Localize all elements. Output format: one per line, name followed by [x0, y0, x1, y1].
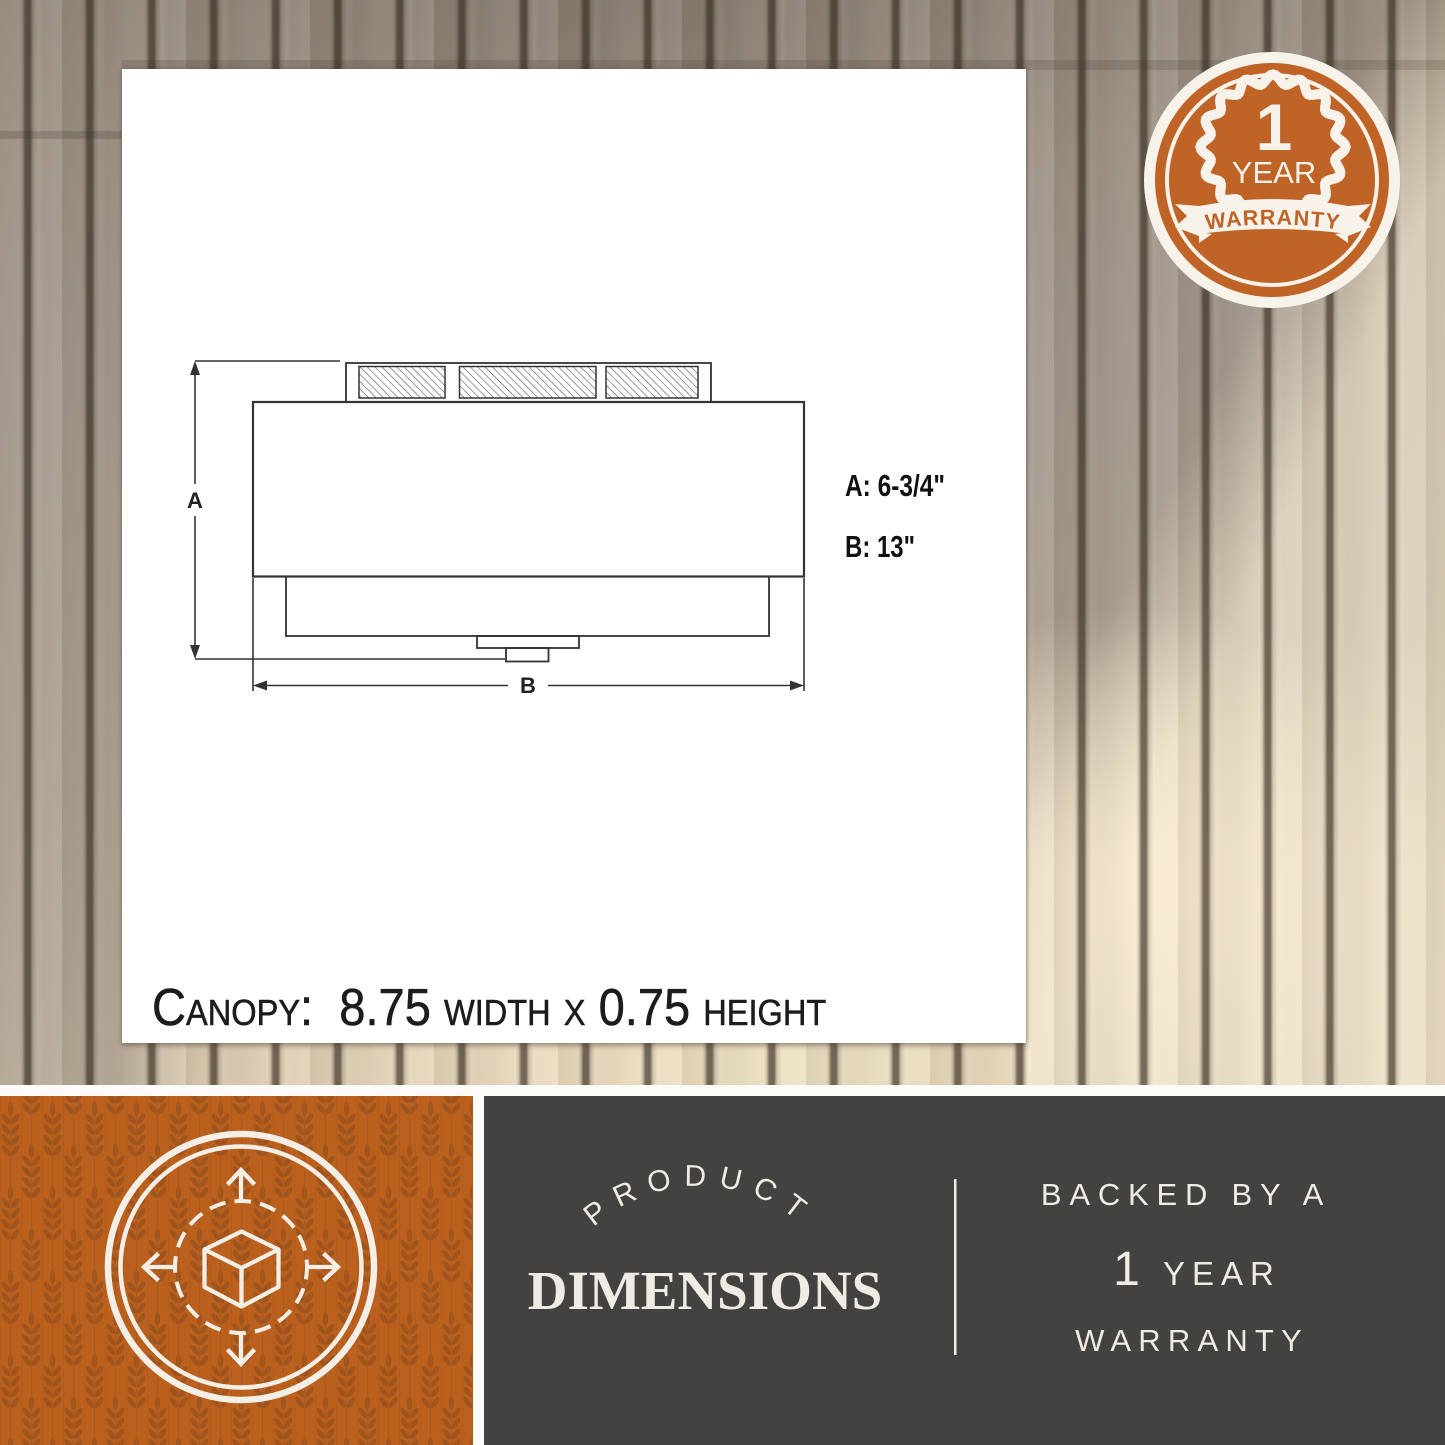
svg-text:B: B	[520, 673, 536, 698]
svg-text:PRODUCT: PRODUCT	[578, 1160, 822, 1233]
svg-text:1 YEAR: 1 YEAR	[1113, 1243, 1281, 1296]
svg-text:1: 1	[1256, 90, 1293, 164]
svg-text:YEAR: YEAR	[1232, 155, 1316, 190]
svg-text:BACKED BY A: BACKED BY A	[1041, 1177, 1331, 1212]
svg-text:WARRANTY: WARRANTY	[1075, 1323, 1309, 1358]
svg-text:A: 6-3/4": A: 6-3/4"	[845, 468, 945, 503]
svg-text:B: 13": B: 13"	[845, 529, 915, 564]
svg-text:A: A	[187, 488, 203, 513]
svg-text:DIMENSIONS: DIMENSIONS	[528, 1260, 883, 1321]
